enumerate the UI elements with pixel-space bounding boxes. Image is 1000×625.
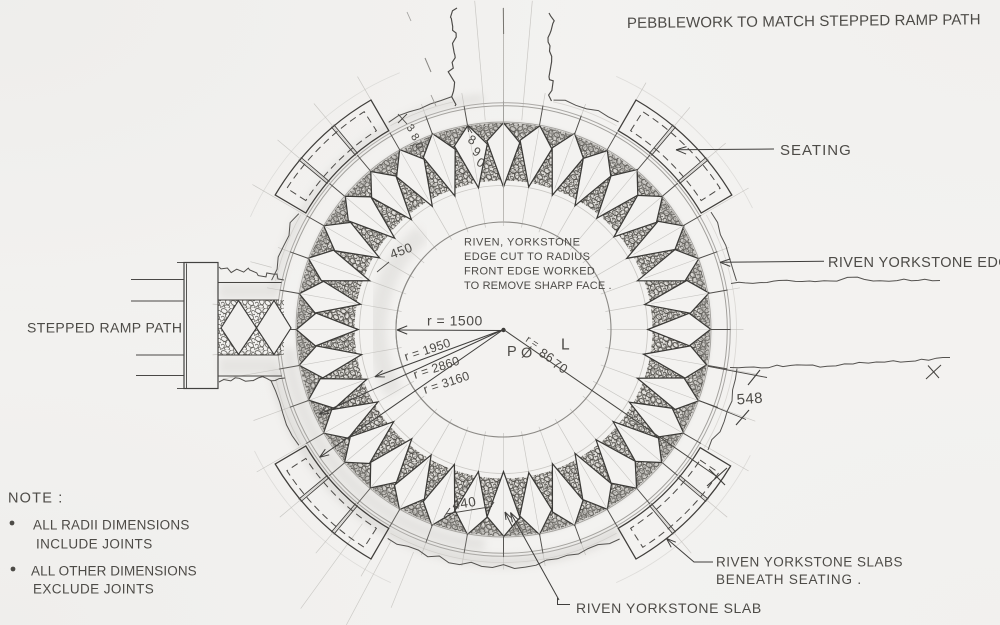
svg-text:NOTE :: NOTE :	[8, 491, 64, 507]
svg-text:RIVEN YORKSTONE SLABS: RIVEN YORKSTONE SLABS	[716, 555, 903, 570]
svg-text:548: 548	[736, 390, 763, 409]
svg-text:ALL RADII DIMENSIONS: ALL RADII DIMENSIONS	[33, 518, 190, 533]
svg-text:EDGE CUT TO RADIUS: EDGE CUT TO RADIUS	[464, 251, 590, 263]
svg-text:r = 1500: r = 1500	[427, 313, 483, 329]
svg-text:P: P	[507, 344, 518, 360]
svg-text:SEATING: SEATING	[780, 142, 852, 159]
svg-text:TO REMOVE SHARP FACE .: TO REMOVE SHARP FACE .	[464, 280, 612, 292]
svg-text:INCLUDE JOINTS: INCLUDE JOINTS	[36, 537, 153, 552]
svg-text:STEPPED RAMP PATH: STEPPED RAMP PATH	[27, 320, 182, 336]
svg-text:L: L	[561, 337, 571, 354]
svg-text:ALL OTHER DIMENSIONS: ALL OTHER DIMENSIONS	[31, 564, 197, 579]
svg-text:FRONT EDGE WORKED: FRONT EDGE WORKED	[464, 266, 595, 278]
svg-text:RIVEN, YORKSTONE: RIVEN, YORKSTONE	[464, 237, 580, 249]
svg-text:BENEATH SEATING .: BENEATH SEATING .	[716, 572, 862, 587]
svg-text:EXCLUDE JOINTS: EXCLUDE JOINTS	[33, 582, 154, 597]
svg-text:RIVEN YORKSTONE EDGE: RIVEN YORKSTONE EDGE	[828, 255, 1000, 271]
svg-text:RIVEN YORKSTONE SLAB: RIVEN YORKSTONE SLAB	[576, 600, 762, 616]
